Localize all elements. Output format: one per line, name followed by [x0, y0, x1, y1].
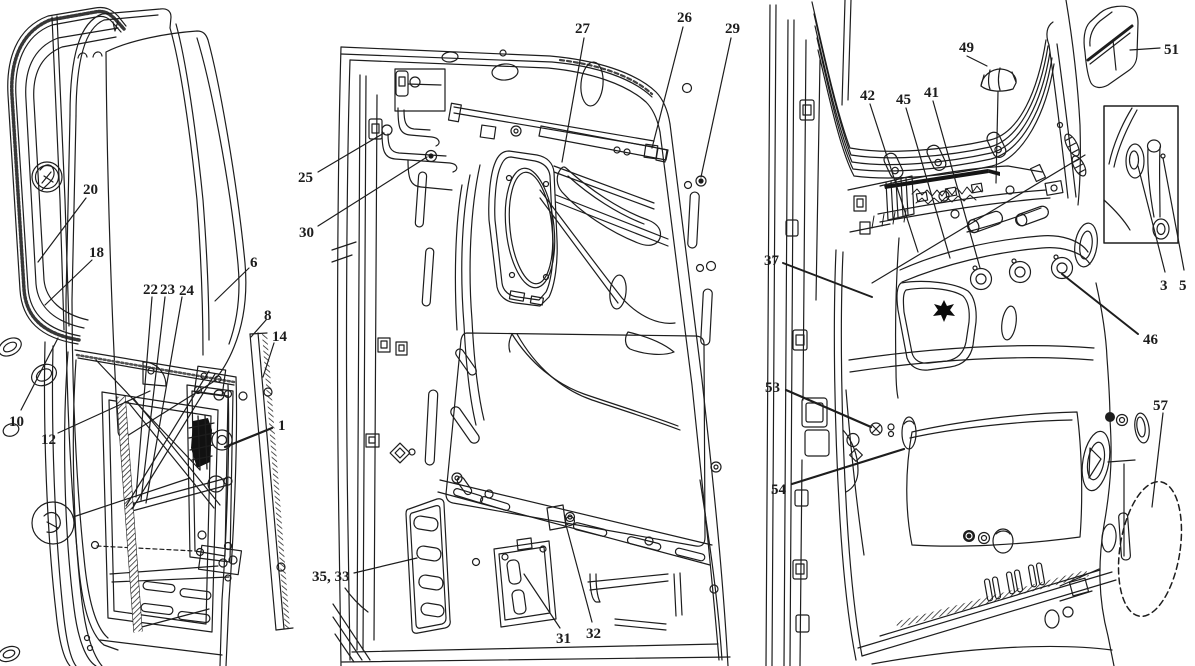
svg-text:6: 6 — [250, 255, 258, 271]
svg-text:45: 45 — [896, 92, 911, 108]
svg-text:57: 57 — [1153, 398, 1169, 414]
svg-text:32: 32 — [586, 626, 601, 642]
svg-text:51: 51 — [1164, 42, 1179, 58]
svg-text:25: 25 — [298, 170, 313, 186]
svg-text:5: 5 — [1179, 278, 1187, 294]
svg-text:14: 14 — [272, 329, 288, 345]
svg-text:54: 54 — [771, 482, 787, 498]
svg-text:31: 31 — [556, 631, 571, 647]
svg-text:37: 37 — [764, 253, 780, 269]
svg-text:29: 29 — [725, 21, 740, 37]
svg-text:8: 8 — [264, 308, 272, 324]
svg-text:12: 12 — [41, 432, 56, 448]
svg-text:26: 26 — [677, 10, 693, 26]
svg-text:23: 23 — [160, 282, 175, 298]
svg-text:35, 33: 35, 33 — [312, 569, 350, 585]
svg-text:18: 18 — [89, 245, 104, 261]
svg-text:49: 49 — [959, 40, 974, 56]
svg-text:3: 3 — [1160, 278, 1168, 294]
svg-text:22: 22 — [143, 282, 158, 298]
svg-text:27: 27 — [575, 21, 591, 37]
svg-text:24: 24 — [179, 283, 195, 299]
svg-text:30: 30 — [299, 225, 314, 241]
svg-text:10: 10 — [9, 414, 24, 430]
svg-text:1: 1 — [278, 418, 286, 434]
svg-text:42: 42 — [860, 88, 875, 104]
svg-text:46: 46 — [1143, 332, 1159, 348]
svg-text:41: 41 — [924, 85, 939, 101]
svg-text:53: 53 — [765, 380, 780, 396]
svg-text:20: 20 — [83, 182, 98, 198]
